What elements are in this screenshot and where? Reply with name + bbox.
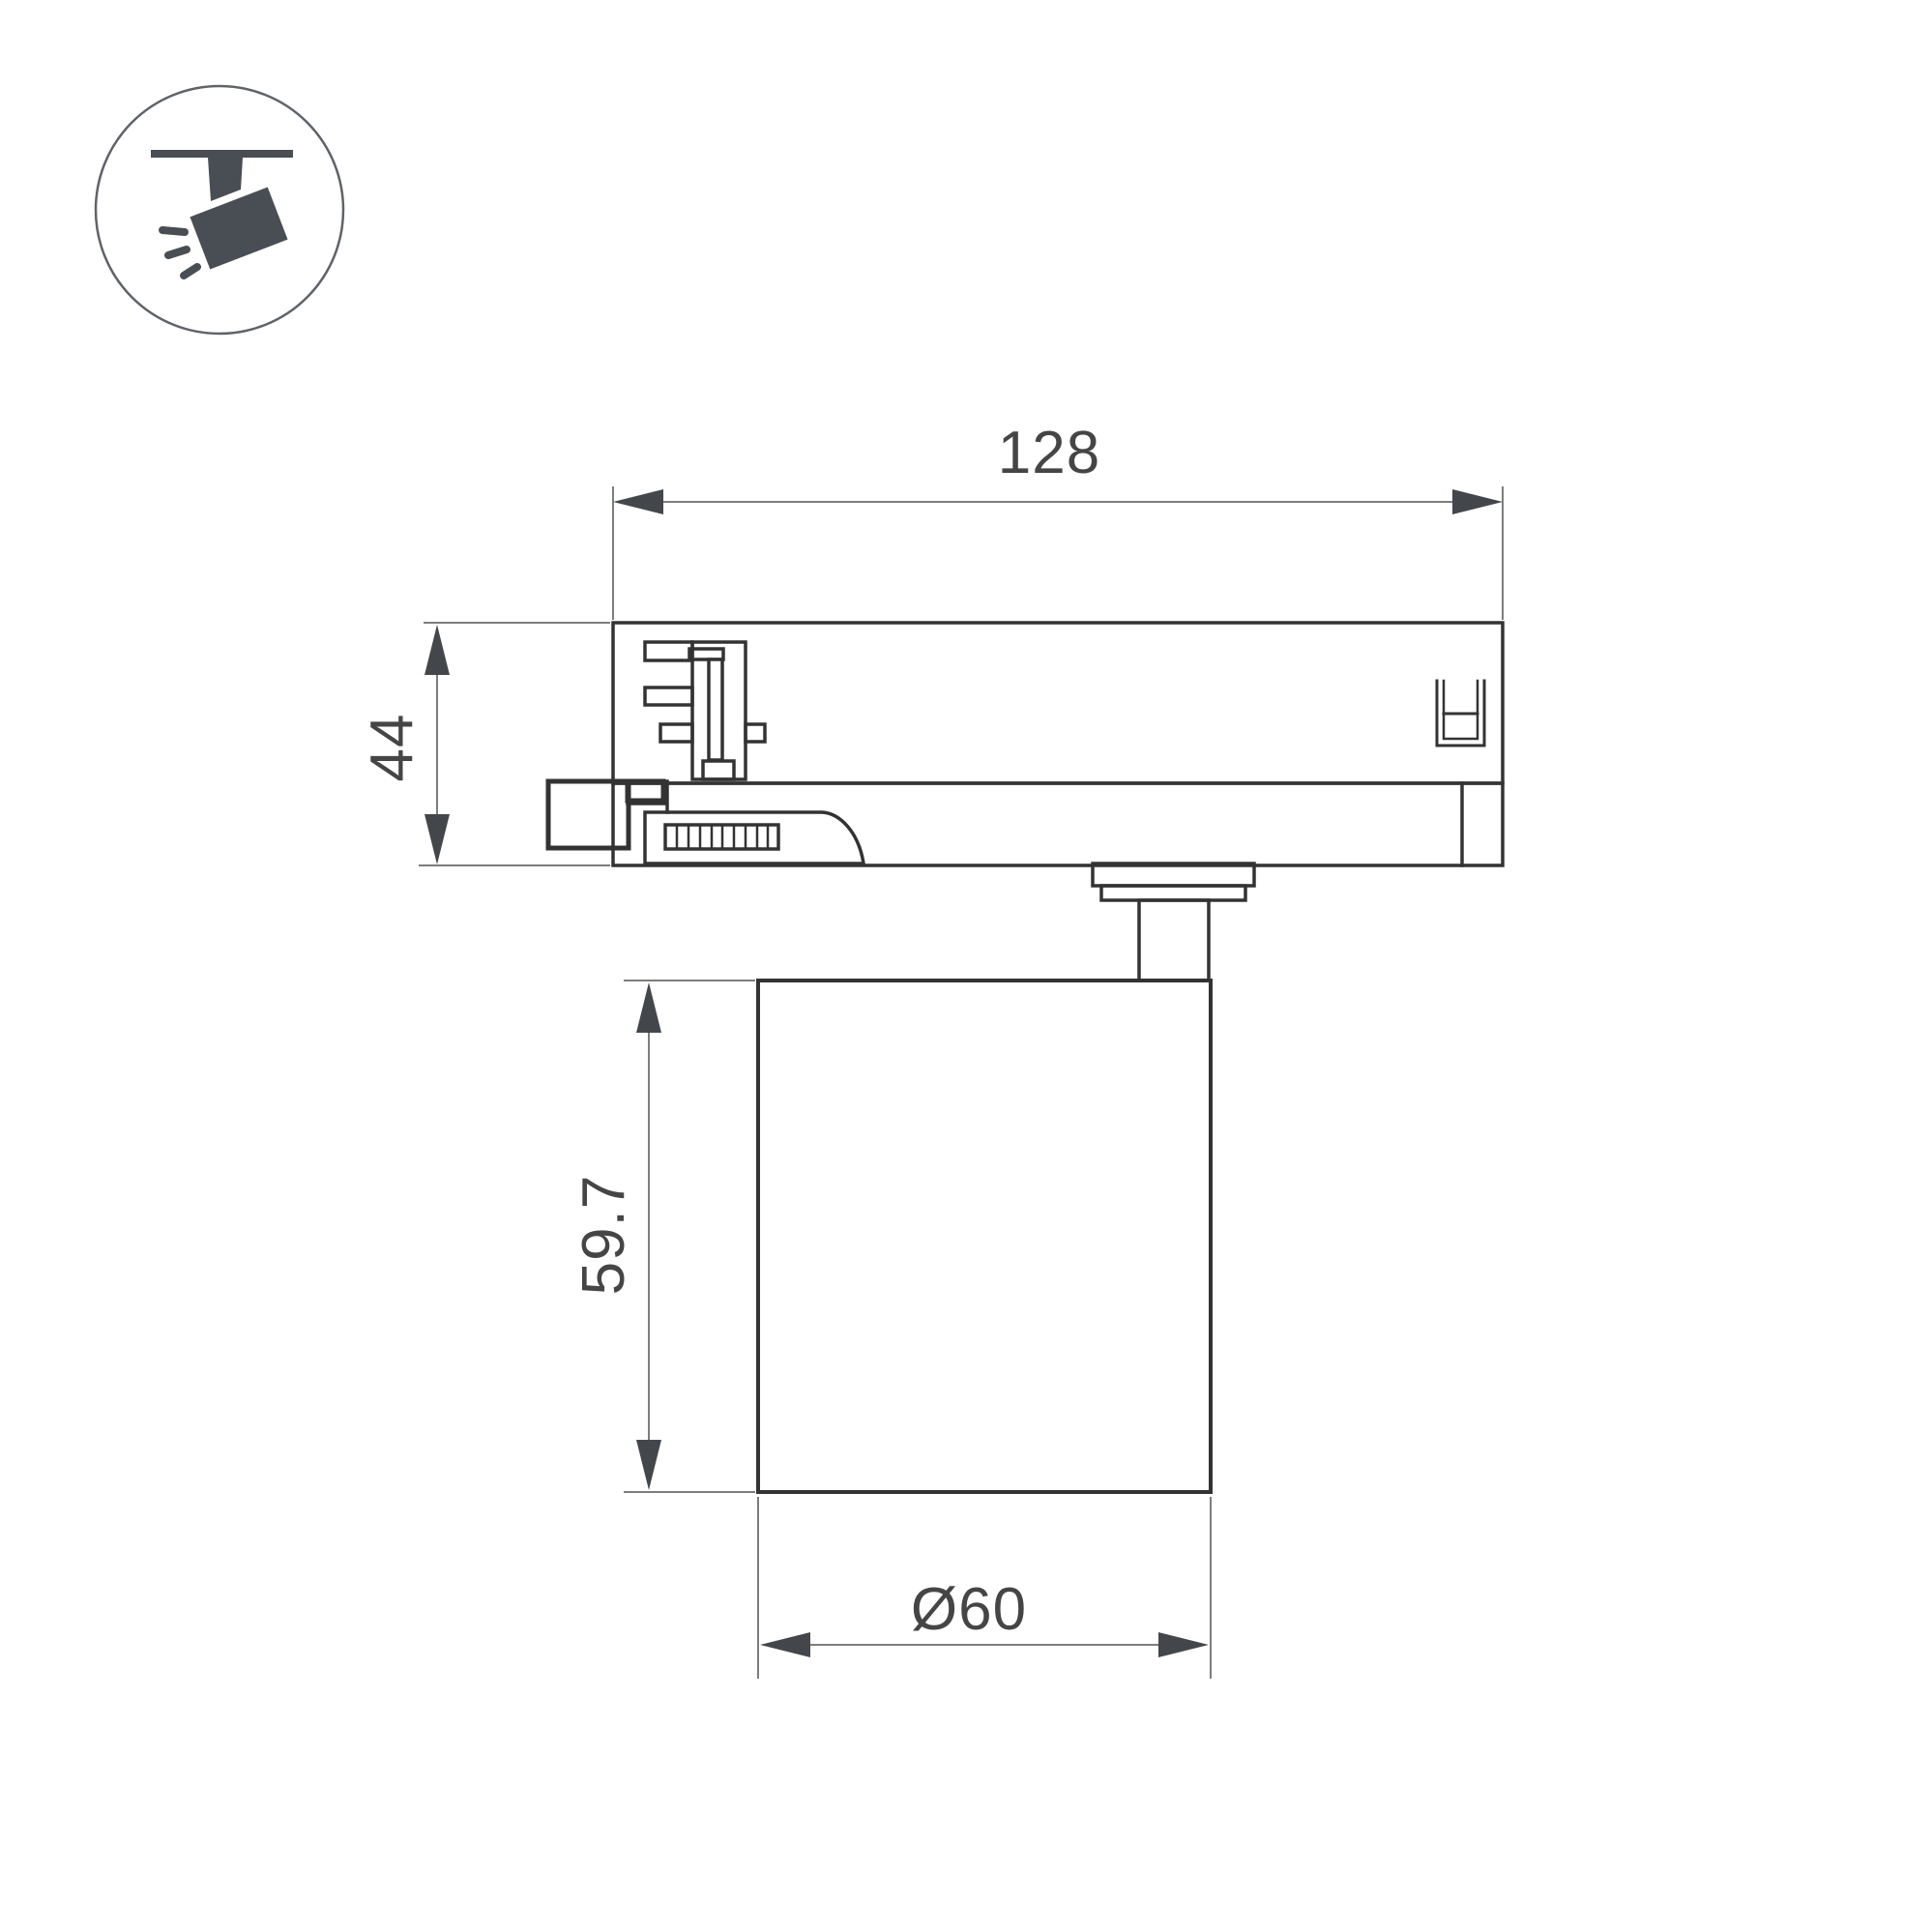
arrow-128-left	[613, 489, 663, 514]
arrow-128-right	[1452, 489, 1503, 514]
dim-label-track-width: 128	[998, 420, 1100, 486]
dimension-arrows	[424, 489, 1503, 1657]
dim-label-adapter-height: 44	[359, 714, 425, 782]
dim-label-body-diameter: Ø60	[911, 1576, 1027, 1643]
lamp-body	[758, 981, 1211, 1492]
arrow-d60-left	[760, 1632, 810, 1657]
track-spotlight-icon	[96, 86, 343, 334]
dimension-labels: 128 44 59.7 Ø60	[359, 420, 1100, 1643]
arrow-d60-right	[1158, 1632, 1209, 1657]
luminaire-outline	[548, 623, 1503, 1492]
dim-body-height	[624, 981, 755, 1492]
stem	[1139, 900, 1209, 981]
arrow-44-bottom	[424, 814, 450, 864]
dim-label-body-height: 59.7	[571, 1175, 637, 1296]
track-clip	[1437, 681, 1484, 746]
icon-track-bar	[151, 150, 293, 158]
dimension-drawing: 128 44 59.7 Ø60	[0, 0, 1932, 1932]
latch-box	[548, 781, 629, 848]
arrow-597-top	[636, 982, 661, 1033]
grip-ribs	[677, 827, 768, 847]
dim-track-width	[613, 486, 1503, 620]
dim-adapter-height	[419, 623, 610, 865]
dimension-lines	[419, 486, 1503, 1679]
dimension-drawing-page: 128 44 59.7 Ø60	[0, 0, 1932, 1932]
arrow-597-bottom	[636, 1440, 661, 1490]
flange-step-2	[1101, 886, 1245, 900]
contact-pin-assembly	[645, 642, 765, 779]
arrow-44-top	[424, 625, 450, 675]
